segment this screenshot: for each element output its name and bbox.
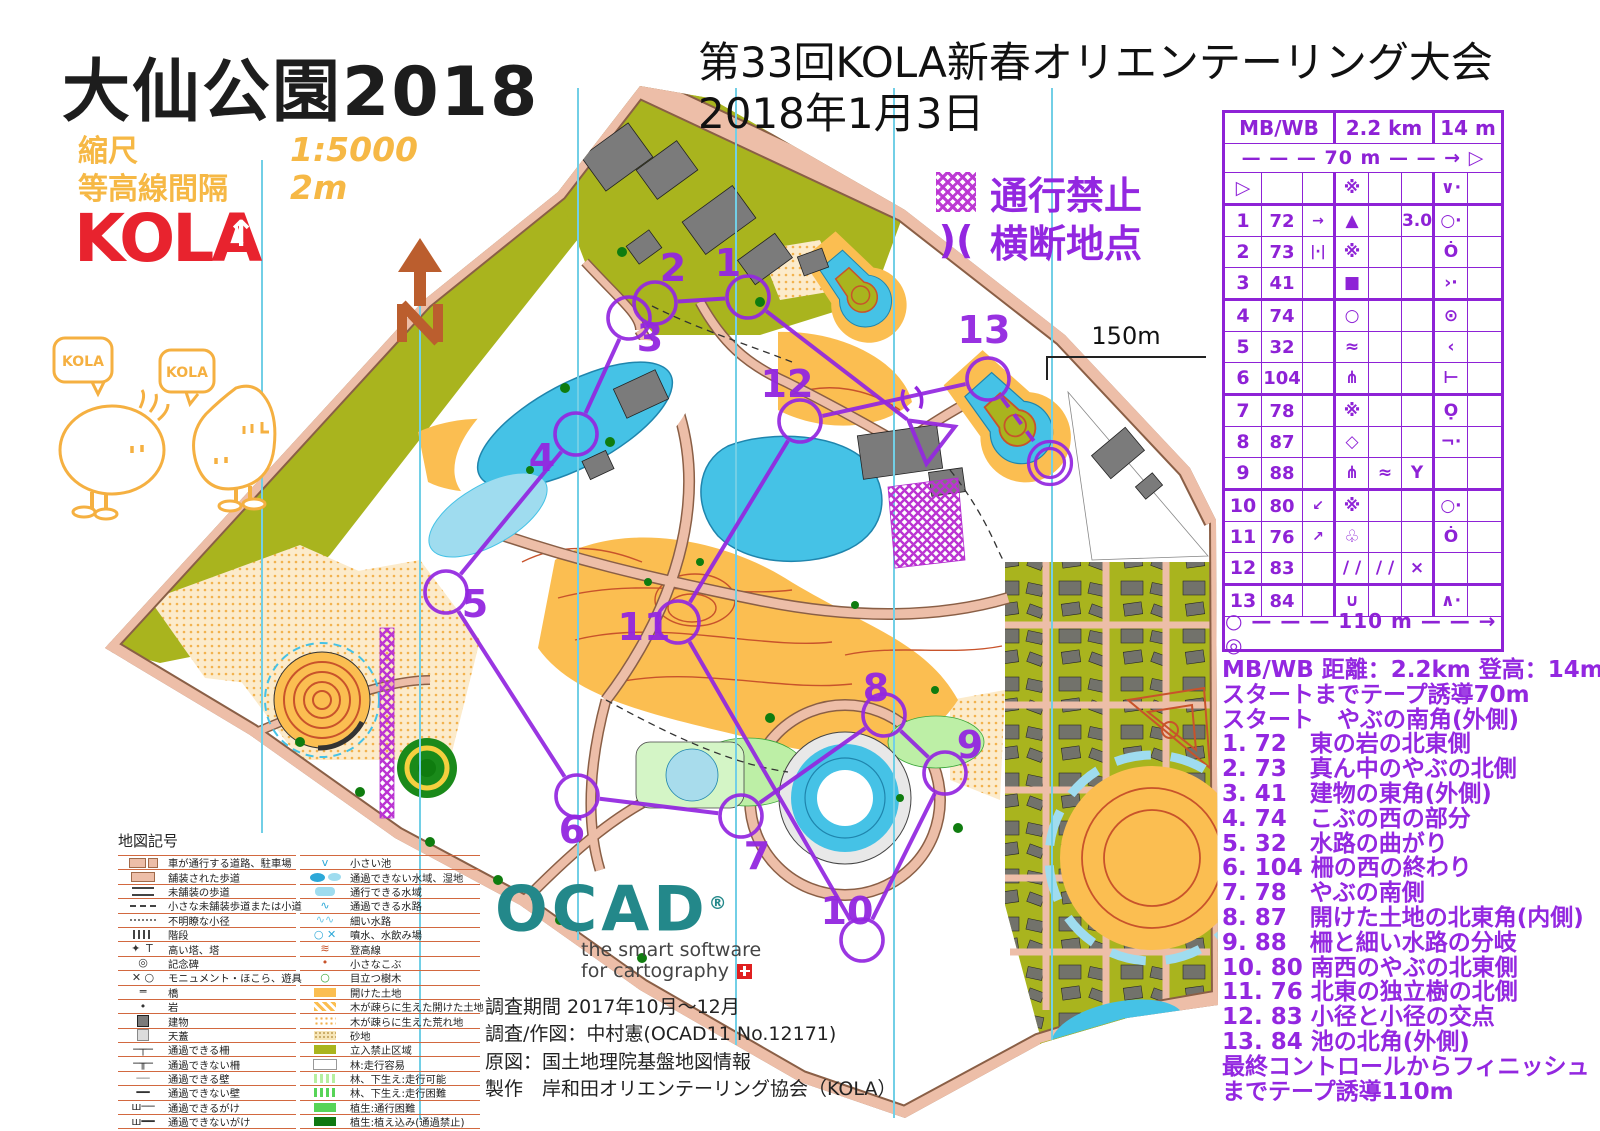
credit-line: 製作 岸和田オリエンテーリング協会（KOLA）: [485, 1076, 896, 1104]
legend-symbol: [118, 1029, 168, 1041]
control-card-cell: [1369, 332, 1402, 363]
legend-label: 通過できる水路: [350, 898, 422, 913]
legend-label: 通過できないがけ: [168, 1114, 250, 1129]
control-card-cell: Ȯ: [1435, 522, 1468, 553]
control-card-cell: 73: [1262, 237, 1303, 268]
control-card-cell: [1468, 206, 1501, 237]
control-card-cell: [1369, 301, 1402, 332]
legend-label: 通過できない壁: [168, 1085, 240, 1100]
event-name: 第33回KOLA新春オリエンテーリング大会: [698, 38, 1493, 88]
control-card-cell: ▲: [1336, 206, 1369, 237]
control-card-cell: [1303, 173, 1336, 206]
control-card-cell: 2.2 km: [1336, 113, 1435, 144]
control-card-cell: ○: [1336, 301, 1369, 332]
control-card-cell: [1468, 491, 1501, 522]
control-card-cell: [1435, 458, 1468, 491]
contour-value: 2m: [290, 168, 347, 207]
legend-item: 植生:通行困難: [300, 1101, 480, 1115]
legend-item: •岩: [118, 1000, 296, 1014]
control-card-cell: [1369, 491, 1402, 522]
legend-item: ✕ ○モニュメント・ほこら、遊具: [118, 971, 296, 985]
legend-symbol: [118, 905, 168, 907]
control-card-cell: ※: [1336, 396, 1369, 427]
description-line: 1. 72 東の岩の北東側: [1222, 732, 1600, 757]
control-card-cell: 11: [1225, 522, 1262, 553]
legend-symbol: [118, 919, 168, 921]
legend-symbol: ✕ ○: [118, 973, 168, 983]
legend-item: 林、下生え:走行困難: [300, 1086, 480, 1100]
legend-symbol: [300, 873, 350, 882]
credits-block: OCAD® the smart software for cartography…: [485, 874, 896, 1104]
legend-item: 植生:植え込み(通過禁止): [300, 1115, 480, 1129]
orienteering-map-sheet: 12345678910111213 KOLA KOLA 大仙公園2018 縮尺1…: [0, 0, 1600, 1131]
legend-label: 通過できるがけ: [168, 1100, 240, 1115]
control-card-cell: 2: [1225, 237, 1262, 268]
control-card-cell: [1402, 363, 1435, 396]
control-card-cell: ⋔: [1336, 458, 1369, 491]
legend-symbol: [118, 1015, 168, 1027]
control-card-cell: ⊢: [1435, 363, 1468, 396]
legend-symbol: [300, 988, 350, 997]
control-card-cell: ○ — — — 110 m — — → ◎: [1225, 617, 1501, 649]
credit-line: 調査期間 2017年10月～12月: [485, 994, 896, 1022]
legend-symbol: [300, 1117, 350, 1126]
control-card-cell: ∨·: [1435, 173, 1468, 206]
description-line: スタートまでテープ誘導70m: [1222, 683, 1600, 708]
legend-label: 小さい池: [350, 855, 391, 870]
control-card-cell: [1369, 363, 1402, 396]
control-card-cell: 3: [1225, 268, 1262, 301]
control-card-cell: ※: [1336, 173, 1369, 206]
legend-item: 通過できない水域、湿地: [300, 870, 480, 884]
control-description-list: MB/WB 距離：2.2km 登高：14mスタートまでテープ誘導70mスタート …: [1222, 658, 1600, 1104]
kola-logo-arrow-icon: ↑: [226, 214, 256, 255]
credit-lines: 調査期間 2017年10月～12月 調査/作図：中村憲(OCAD11 No.12…: [485, 994, 896, 1104]
control-card-cell: ≈: [1336, 332, 1369, 363]
legend-symbol: [300, 1016, 350, 1025]
legend-symbol: [300, 887, 350, 896]
control-card-cell: [1262, 173, 1303, 206]
legend-symbol: ○: [300, 973, 350, 983]
scale-bar: 150m: [1046, 322, 1206, 380]
legend-item: ш──通過できるがけ: [118, 1101, 296, 1115]
control-card-cell: ■: [1336, 268, 1369, 301]
control-card-cell: [1402, 396, 1435, 427]
control-number: 3: [637, 316, 663, 360]
legend-label: 橋: [168, 985, 178, 1000]
legend-symbol: [118, 887, 168, 896]
mascot-bubble-left: KOLA: [62, 354, 104, 370]
ocad-taglines: the smart software for cartography: [581, 940, 896, 982]
control-number: 7: [744, 834, 770, 878]
legend-item: v小さい池: [300, 856, 480, 870]
control-card-cell: ⊙: [1435, 301, 1468, 332]
control-card-cell: →: [1303, 206, 1336, 237]
legend-item: 木が疎らに生えた荒れ地: [300, 1014, 480, 1028]
legend-label: モニュメント・ほこら、遊具: [168, 970, 302, 985]
control-card-cell: 7: [1225, 396, 1262, 427]
legend-symbol: ──: [118, 1074, 168, 1084]
legend-symbol: [300, 1103, 350, 1112]
control-card-cell: [1402, 491, 1435, 522]
control-card-cell: [1303, 268, 1336, 301]
legend-label: 記念碑: [168, 956, 199, 971]
control-card-cell: [1402, 237, 1435, 268]
legend-item: ∿通過できる水路: [300, 899, 480, 913]
description-line: スタート やぶの南角(外側): [1222, 708, 1600, 733]
legend-label: 岩: [168, 999, 178, 1014]
legend-item: ─┬─通過できる柵: [118, 1043, 296, 1057]
legend-label: 小さな未舗装歩道または小道: [168, 898, 302, 913]
control-card-cell: [1468, 173, 1501, 206]
control-description-card: MB/WB2.2 km14 m— — — 70 m — — → ▷▷※∨·172…: [1222, 110, 1504, 652]
legend-label: 登高線: [350, 942, 381, 957]
control-card-cell: ‹: [1435, 332, 1468, 363]
control-number: 13: [958, 308, 1011, 352]
description-line: 9. 88 柵と細い水路の分岐: [1222, 931, 1600, 956]
legend-symbol: •: [118, 1002, 168, 1012]
legend-column-2: v小さい池通過できない水域、湿地通行できる水域∿通過できる水路∿∿細い水路○ ✕…: [300, 855, 480, 1131]
legend-label: 車が通行する道路、駐車場: [168, 855, 292, 870]
control-card-cell: ※: [1336, 237, 1369, 268]
control-card-cell: [1303, 427, 1336, 458]
north-arrow-icon: [398, 238, 442, 342]
forbidden-area: [888, 478, 965, 568]
control-card-cell: [1468, 332, 1501, 363]
forbidden-label: 通行禁止: [990, 165, 1142, 220]
control-card-cell: [1435, 553, 1468, 586]
control-card-cell: Ọ: [1435, 396, 1468, 427]
legend-item: 舗装された歩道: [118, 870, 296, 884]
control-card-cell: ⋔: [1336, 363, 1369, 396]
control-card-cell: ≈: [1369, 458, 1402, 491]
scale-bar-tick: [1046, 358, 1048, 380]
control-card-cell: [1369, 268, 1402, 301]
legend-label: 林、下生え:走行可能: [350, 1071, 446, 1086]
control-number: 6: [559, 808, 585, 852]
control-card-cell: [1303, 332, 1336, 363]
description-line: 3. 41 建物の東角(外側): [1222, 782, 1600, 807]
control-card-cell: 32: [1262, 332, 1303, 363]
control-card-cell: ×: [1402, 553, 1435, 586]
legend-title: 地図記号: [118, 830, 480, 851]
control-card-cell: MB/WB: [1225, 113, 1336, 144]
legend-label: 舗装された歩道: [168, 870, 240, 885]
legend-item: ═橋: [118, 986, 296, 1000]
credit-line: 原図：国土地理院基盤地図情報: [485, 1049, 896, 1077]
control-card-cell: [1303, 396, 1336, 427]
control-card-cell: |·|: [1303, 237, 1336, 268]
control-card-cell: ↙: [1303, 491, 1336, 522]
description-line: 13. 84 池の北角(外側): [1222, 1030, 1600, 1055]
legend-label: 噴水、水飲み場: [350, 927, 422, 942]
control-card-cell: [1402, 173, 1435, 206]
control-card-cell: 87: [1262, 427, 1303, 458]
description-line: 11. 76 北東の独立樹の北側: [1222, 980, 1600, 1005]
legend-item: ∿∿細い水路: [300, 914, 480, 928]
control-number: 12: [761, 362, 814, 406]
legend-symbol: ш──: [118, 1102, 168, 1112]
control-card-cell: ◇: [1336, 427, 1369, 458]
overprint-legend: 通行禁止 )( 横断地点: [936, 168, 1142, 264]
description-line: 6. 104 柵の西の終わり: [1222, 856, 1600, 881]
legend-label: 高い塔、塔: [168, 942, 219, 957]
legend-symbol: ✦ Ｔ: [118, 944, 168, 954]
legend-column-1: 車が通行する道路、駐車場舗装された歩道未舗装の歩道小さな未舗装歩道または小道不明…: [118, 855, 296, 1131]
control-card-cell: [1468, 458, 1501, 491]
legend-item: ──通過できる壁: [118, 1072, 296, 1086]
description-line: 12. 83 小径と小径の交点: [1222, 1005, 1600, 1030]
legend-item: 木が疎らに生えた開けた土地: [300, 1000, 480, 1014]
legend-label: 植生:通行困難: [350, 1100, 415, 1115]
control-card-cell: [1402, 268, 1435, 301]
legend-item: 不明瞭な小径: [118, 914, 296, 928]
legend-label: 通過できない柵: [168, 1057, 240, 1072]
control-card-cell: [1369, 427, 1402, 458]
control-number: 5: [462, 582, 488, 626]
control-card-cell: ▷: [1225, 173, 1262, 206]
description-line: 5. 32 水路の曲がり: [1222, 832, 1600, 857]
legend-item: •小さなこぶ: [300, 957, 480, 971]
crossing-label: 横断地点: [990, 213, 1142, 268]
forbidden-legend-row: 通行禁止: [936, 168, 1142, 216]
description-line: 2. 73 真ん中のやぶの北側: [1222, 757, 1600, 782]
legend-symbol: ≋: [300, 944, 350, 954]
legend-item: 通行できる水域: [300, 885, 480, 899]
legend-item: 車が通行する道路、駐車場: [118, 856, 296, 870]
legend-symbol: ═: [118, 987, 168, 997]
legend-item: ━━通過できない壁: [118, 1086, 296, 1100]
legend-item: 小さな未舗装歩道または小道: [118, 899, 296, 913]
legend-symbol: ○ ✕: [300, 930, 350, 940]
legend-label: 通行できる水域: [350, 884, 422, 899]
map-symbol-legend: 地図記号 車が通行する道路、駐車場舗装された歩道未舗装の歩道小さな未舗装歩道また…: [118, 830, 480, 1131]
control-card-cell: 8: [1225, 427, 1262, 458]
legend-label: 通過できる壁: [168, 1071, 230, 1086]
legend-symbol: ━━: [118, 1088, 168, 1098]
legend-label: 通過できる柵: [168, 1042, 230, 1057]
legend-label: 未舗装の歩道: [168, 884, 230, 899]
control-card-cell: 6: [1225, 363, 1262, 396]
legend-item: 立入禁止区域: [300, 1043, 480, 1057]
control-card-cell: ○·: [1435, 491, 1468, 522]
legend-symbol: •: [300, 958, 350, 968]
swiss-flag-icon: [737, 964, 752, 979]
legend-label: 植生:植え込み(通過禁止): [350, 1114, 464, 1129]
control-card-cell: [1468, 396, 1501, 427]
legend-symbol: [118, 930, 168, 939]
legend-label: 開けた土地: [350, 985, 401, 1000]
map-title: 大仙公園2018: [62, 36, 539, 135]
registered-mark: ®: [709, 893, 727, 914]
control-card-cell: 76: [1262, 522, 1303, 553]
control-card-cell: 3.0: [1402, 206, 1435, 237]
control-card-cell: [1468, 363, 1501, 396]
legend-symbol: ∿: [300, 901, 350, 911]
legend-symbol: ─┬─: [118, 1045, 168, 1055]
description-line: MB/WB 距離：2.2km 登高：14m: [1222, 658, 1600, 683]
legend-item: ш━━通過できないがけ: [118, 1115, 296, 1129]
control-card-cell: [1402, 427, 1435, 458]
control-card-cell: [1303, 553, 1336, 586]
control-card-cell: ∕ ∕: [1336, 553, 1369, 586]
legend-symbol: ш━━: [118, 1117, 168, 1127]
legend-item: ○ ✕噴水、水飲み場: [300, 928, 480, 942]
control-card-cell: 78: [1262, 396, 1303, 427]
control-card-cell: 12: [1225, 553, 1262, 586]
crossing-point-icon: )(: [936, 218, 976, 262]
legend-label: 建物: [168, 1014, 189, 1029]
legend-label: 砂地: [350, 1028, 371, 1043]
scale-bar-line: [1046, 356, 1206, 358]
control-card-cell: [1369, 237, 1402, 268]
control-card-cell: 9: [1225, 458, 1262, 491]
control-number: 11: [618, 605, 671, 649]
control-card-cell: [1303, 458, 1336, 491]
legend-symbol: ─╥─: [118, 1059, 168, 1069]
legend-label: 小さなこぶ: [350, 956, 401, 971]
control-number: 1: [715, 241, 741, 285]
control-number: 9: [957, 723, 983, 767]
control-card-cell: ¬·: [1435, 427, 1468, 458]
control-card-cell: [1402, 332, 1435, 363]
control-card-cell: 74: [1262, 301, 1303, 332]
control-card-cell: [1468, 553, 1501, 586]
description-line: 4. 74 こぶの西の部分: [1222, 807, 1600, 832]
legend-item: ─╥─通過できない柵: [118, 1057, 296, 1071]
legend-symbol: ∿∿: [300, 915, 350, 925]
control-card-cell: [1303, 301, 1336, 332]
legend-item: 未舗装の歩道: [118, 885, 296, 899]
control-card-cell: ↗: [1303, 522, 1336, 553]
control-card-cell: [1468, 427, 1501, 458]
legend-item: 林:走行容易: [300, 1057, 480, 1071]
control-number: 2: [660, 246, 686, 290]
legend-symbol: [300, 1002, 350, 1011]
legend-label: 木が疎らに生えた荒れ地: [350, 1014, 463, 1029]
control-card-cell: [1402, 301, 1435, 332]
control-card-cell: Ȯ: [1435, 237, 1468, 268]
legend-item: 砂地: [300, 1029, 480, 1043]
description-line: 8. 87 開けた土地の北東角(内側): [1222, 906, 1600, 931]
control-card-cell: [1303, 363, 1336, 396]
control-card-cell: ♧: [1336, 522, 1369, 553]
control-card-cell: ※: [1336, 491, 1369, 522]
legend-item: 建物: [118, 1014, 296, 1028]
description-line: 7. 78 やぶの南側: [1222, 881, 1600, 906]
legend-symbol: [300, 1059, 350, 1070]
control-card-cell: [1468, 301, 1501, 332]
control-card-cell: ∕ ∕: [1369, 553, 1402, 586]
legend-symbol: [300, 1031, 350, 1040]
legend-item: ≋登高線: [300, 942, 480, 956]
control-card-cell: [1402, 522, 1435, 553]
mascots: KOLA KOLA: [54, 338, 275, 519]
control-card-cell: [1369, 522, 1402, 553]
legend-symbol: [118, 858, 168, 868]
control-card-cell: Y: [1402, 458, 1435, 491]
control-card-cell: 4: [1225, 301, 1262, 332]
legend-item: 林、下生え:走行可能: [300, 1072, 480, 1086]
control-card-cell: 14 m: [1435, 113, 1501, 144]
legend-label: 林、下生え:走行困難: [350, 1085, 446, 1100]
scale-bar-label: 150m: [1046, 322, 1206, 350]
description-line: 最終コントロールからフィニッシュ: [1222, 1055, 1600, 1080]
legend-symbol: [118, 872, 168, 882]
description-line: までテープ誘導110m: [1222, 1080, 1600, 1105]
forbidden-area: [380, 628, 394, 818]
control-card-cell: [1468, 522, 1501, 553]
legend-label: 立入禁止区域: [350, 1042, 412, 1057]
legend-item: ✦ Ｔ高い塔、塔: [118, 942, 296, 956]
forbidden-area-swatch: [936, 172, 976, 212]
description-line: 10. 80 南西のやぶの北東側: [1222, 956, 1600, 981]
control-card-cell: [1369, 396, 1402, 427]
crossing-legend-row: )( 横断地点: [936, 216, 1142, 264]
legend-symbol: [300, 1074, 350, 1083]
control-card-cell: 83: [1262, 553, 1303, 586]
legend-label: 木が疎らに生えた開けた土地: [350, 999, 484, 1014]
mascot-bubble-right: KOLA: [166, 365, 208, 381]
control-card-cell: 104: [1262, 363, 1303, 396]
control-card-cell: ○·: [1435, 206, 1468, 237]
legend-symbol: [300, 1045, 350, 1054]
legend-label: 通過できない水域、湿地: [350, 870, 463, 885]
control-card-cell: [1468, 237, 1501, 268]
legend-item: ○目立つ樹木: [300, 971, 480, 985]
control-number: 8: [863, 666, 889, 710]
legend-symbol: ◎: [118, 958, 168, 968]
legend-symbol: [300, 1088, 350, 1097]
control-card-cell: 72: [1262, 206, 1303, 237]
control-card-cell: [1369, 206, 1402, 237]
control-card-cell: [1369, 173, 1402, 206]
control-card-cell: 5: [1225, 332, 1262, 363]
control-card-cell: 80: [1262, 491, 1303, 522]
legend-label: 目立つ樹木: [350, 970, 401, 985]
legend-label: 不明瞭な小径: [168, 913, 230, 928]
legend-item: 天蓋: [118, 1029, 296, 1043]
legend-label: 天蓋: [168, 1028, 189, 1043]
legend-item: 階段: [118, 928, 296, 942]
control-card-cell: 88: [1262, 458, 1303, 491]
legend-label: 細い水路: [350, 913, 391, 928]
control-card-cell: — — — 70 m — — → ▷: [1225, 144, 1501, 173]
legend-symbol: v: [300, 858, 350, 868]
control-card-cell: [1468, 268, 1501, 301]
control-card-cell: 41: [1262, 268, 1303, 301]
control-card-cell: 10: [1225, 491, 1262, 522]
legend-label: 階段: [168, 927, 189, 942]
legend-label: 林:走行容易: [350, 1057, 405, 1072]
credit-line: 調査/作図：中村憲(OCAD11 No.12171): [485, 1021, 896, 1049]
control-card-cell: 1: [1225, 206, 1262, 237]
control-card-cell: ›·: [1435, 268, 1468, 301]
legend-item: 開けた土地: [300, 986, 480, 1000]
control-number: 4: [529, 436, 555, 480]
ocad-logo: OCAD®: [495, 874, 896, 940]
legend-item: ◎記念碑: [118, 957, 296, 971]
